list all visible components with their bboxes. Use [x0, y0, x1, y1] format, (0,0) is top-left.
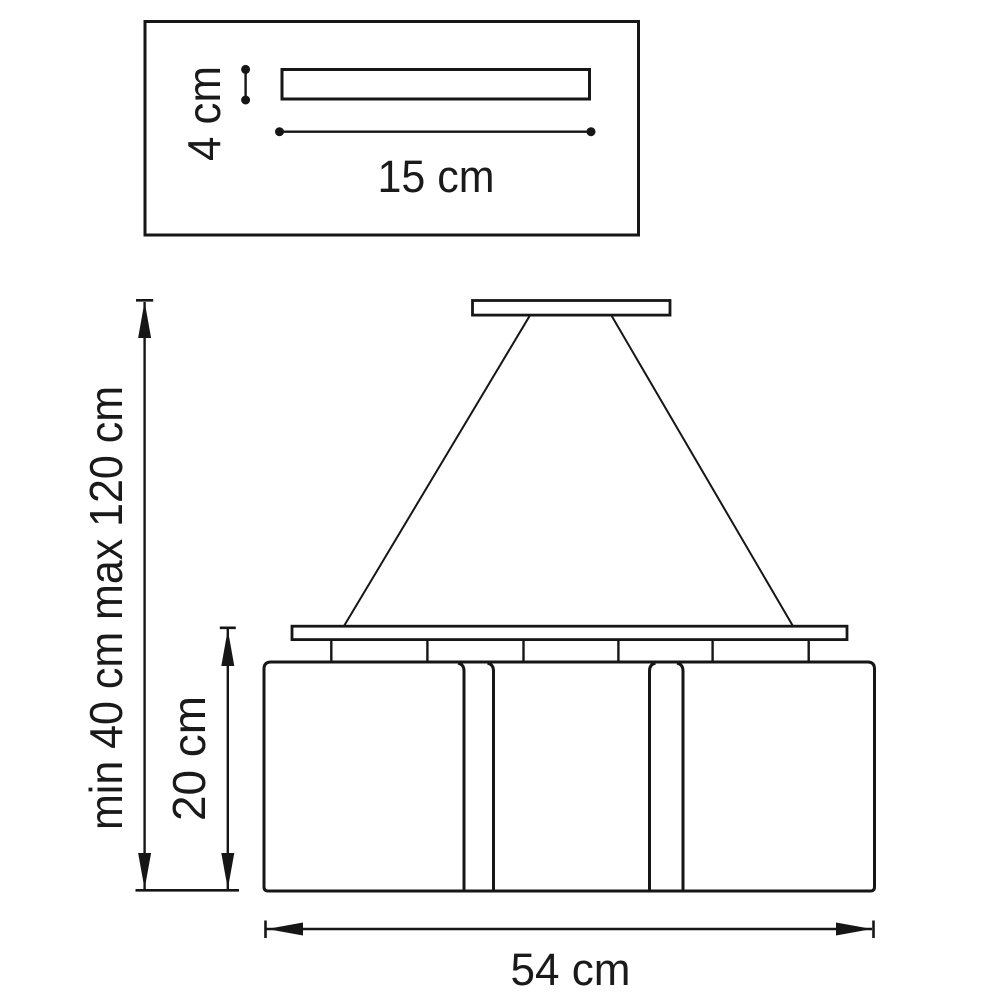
svg-text:4 cm: 4 cm: [178, 66, 230, 161]
svg-text:20 cm: 20 cm: [163, 696, 215, 821]
svg-text:54 cm: 54 cm: [511, 944, 631, 995]
svg-text:min 40 cm max 120 cm: min 40 cm max 120 cm: [80, 386, 132, 830]
svg-text:15 cm: 15 cm: [378, 151, 495, 202]
